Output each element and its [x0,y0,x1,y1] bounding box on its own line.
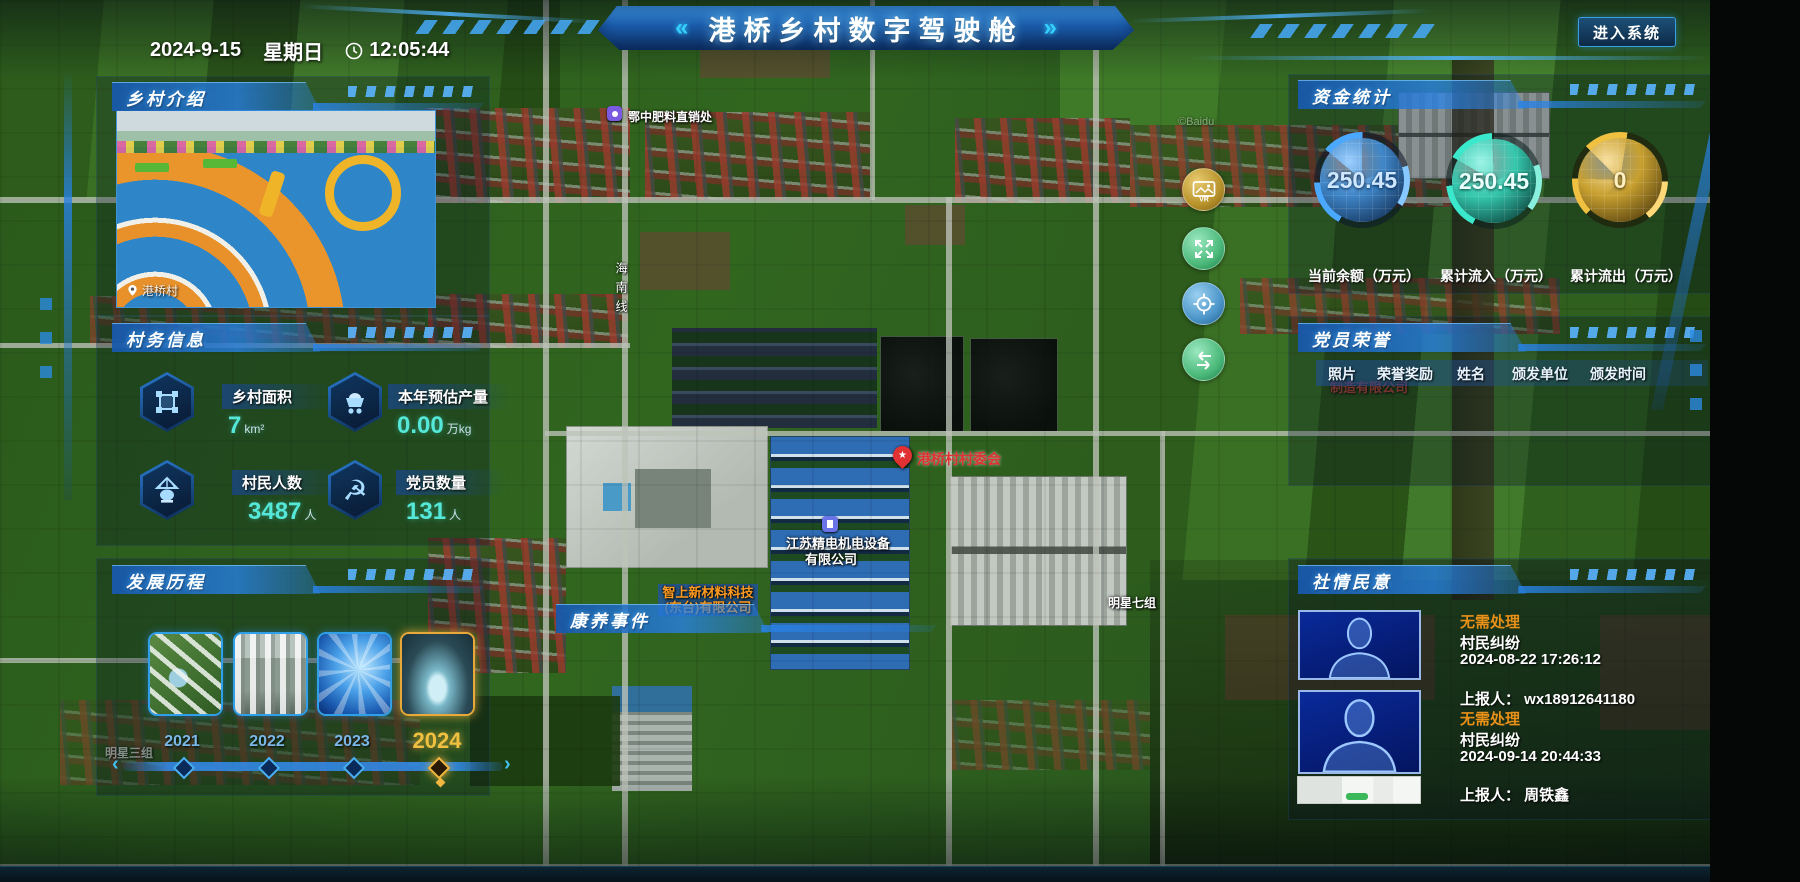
panel-header-funds: 资金统计 [1298,80,1706,108]
page-title: 港桥乡村数字驾驶舱 [709,9,1024,48]
locate-button[interactable] [1182,282,1225,325]
stat-value-area: 7km² [228,412,264,440]
location-pin-icon [127,284,138,297]
header-deco-dashes-left [415,20,600,34]
gauge-current-balance: 250.45 [1314,132,1410,228]
thumb-image [150,634,221,714]
right-deco-square [1690,364,1702,376]
map-pin-purple[interactable] [607,106,622,121]
bottom-edge-bar [0,866,1710,882]
thumb-image [402,634,473,714]
fullscreen-icon [1192,237,1216,261]
map-village [950,700,1150,770]
farmer-icon [140,460,194,520]
locate-icon [1192,292,1216,316]
svg-text:VR: VR [1199,196,1209,203]
datetime-bar: 2024-9-15 星期日 12:05:44 [150,36,449,65]
map-label-fertilizer-store: 鄂中肥料直销处 [628,108,712,125]
timeline-next-icon[interactable]: › [504,753,511,776]
honor-col-date: 颁发时间 [1590,364,1646,384]
party-emblem-icon: ☭ [328,460,382,520]
photo-caption: 港桥村 [127,282,178,299]
gauge-total-outflow: 0 [1572,132,1668,228]
photo-bench [135,163,169,172]
left-deco-square [40,366,52,378]
left-edge-deco [64,70,72,500]
sentiment-reporter-1: 上报人： wx18912641180 [1460,688,1635,709]
timeline-prev-icon[interactable]: ‹ [112,753,119,776]
stat-label-output: 本年预估产量 [388,384,512,409]
panel-header-dashes [348,569,476,580]
honor-col-award: 荣誉奖励 [1377,364,1433,384]
map-field-patch [640,232,730,290]
development-thumb-2023[interactable] [317,632,392,716]
stat-label-area: 乡村面积 [222,384,332,409]
stat-label-party-members: 党员数量 [396,470,506,495]
panel-title-sentiment: 社情民意 [1312,568,1392,593]
sentiment-avatar-1[interactable] [1298,610,1421,680]
panel-header-village-info: 村务信息 [112,323,484,351]
honor-col-issuer: 颁发单位 [1512,364,1568,384]
map-label-committee: 港桥村村委会 [917,449,1001,469]
map-road [946,197,952,867]
map-road [543,0,549,868]
person-hologram-icon [1300,692,1419,772]
sentiment-status-1: 无需处理 [1460,611,1520,632]
panel-title-health-events: 康养事件 [570,607,650,632]
back-arrows-icon [1192,348,1216,372]
sentiment-avatar-2[interactable] [1298,690,1421,774]
map-warehouse [950,476,1127,626]
chat-pill [1346,793,1368,800]
panel-header-line [313,586,484,593]
panel-header-village-intro: 乡村介绍 [112,82,484,110]
cart-icon [328,372,382,432]
village-photo[interactable]: 港桥村 [116,110,436,308]
map-housing-rows [672,328,877,428]
dashboard: 鄂中肥料直销处 海南线 ★ 港桥村村委会 江苏精电机电设备 有限公司 智上新材料… [0,0,1800,882]
sentiment-type-2: 村民纠纷 [1460,729,1520,750]
weekday-text: 星期日 [263,36,323,65]
panel-header-dashes [348,327,476,338]
thumb-image [235,634,306,714]
right-deco-square [1690,330,1702,342]
stat-value-population: 3487人 [248,498,316,526]
gauge-label-outflow: 累计流出（万元） [1570,266,1682,286]
right-panel-deco-line [1190,56,1710,60]
year-2022[interactable]: 2022 [232,733,302,751]
star-icon: ★ [898,450,907,461]
sentiment-time-1: 2024-08-22 17:26:12 [1460,651,1601,668]
main-title-bar: « 港桥乡村数字驾驶舱 » [598,6,1134,50]
photo-bench [203,159,237,168]
panel-title-development: 发展历程 [126,568,206,593]
panel-header-sentiment: 社情民意 [1298,565,1706,593]
map-building-complex [566,426,768,568]
panel-title-village-info: 村务信息 [126,326,206,351]
enter-system-button[interactable]: 进入系统 [1578,17,1676,47]
panel-header-line [1518,586,1706,593]
sentiment-screenshot-thumb[interactable] [1297,776,1421,804]
stat-label-population: 村民人数 [232,470,342,495]
panel-header-dashes [1570,569,1698,580]
sentiment-status-2: 无需处理 [1460,708,1520,729]
fullscreen-button[interactable] [1182,227,1225,270]
panel-header-line [1518,344,1706,351]
map-label-road: 海南线 [613,262,630,319]
map-village [955,118,1130,203]
sentiment-time-2: 2024-09-14 20:44:33 [1460,748,1601,765]
date-text: 2024-9-15 [150,39,241,62]
map-road [1093,0,1099,868]
title-arrow-left-icon: « [675,14,688,42]
map-road [622,0,628,868]
year-2023[interactable]: 2023 [317,733,387,751]
time-text: 12:05:44 [369,39,449,62]
panel-title-village-intro: 乡村介绍 [126,85,206,110]
development-thumb-2022[interactable] [233,632,308,716]
stat-value-output: 0.00万kg [397,412,471,440]
development-thumb-2024[interactable] [400,632,475,716]
gauge-label-inflow: 累计流入（万元） [1440,266,1552,286]
map-road [1160,431,1165,868]
panel-header-line [313,103,484,110]
map-label-group7: 明星七组 [1108,594,1156,611]
gauge-label-balance: 当前余额（万元） [1308,266,1420,286]
map-pond [970,338,1058,432]
panel-header-development: 发展历程 [112,565,484,593]
left-deco-square [40,298,52,310]
honor-col-photo: 照片 [1328,364,1356,384]
panel-header-dashes [348,86,476,97]
year-2024[interactable]: 2024 [402,728,472,754]
panel-header-dashes [1570,84,1698,95]
left-deco-square [40,332,52,344]
right-black-strip [1710,0,1800,882]
panel-header-honor: 党员荣誉 [1298,323,1706,351]
thumb-image [319,634,390,714]
header-deco-dashes-right [1250,24,1445,38]
panorama-vr-button[interactable]: VR [1182,168,1225,211]
panel-header-health-events: 康养事件 [556,604,936,632]
year-2021[interactable]: 2021 [147,733,217,751]
map-pin-company[interactable] [822,516,838,532]
panel-header-line [1518,101,1706,108]
map-village [645,112,870,200]
development-thumb-2021[interactable] [148,632,223,716]
panel-title-funds: 资金统计 [1312,83,1392,108]
map-courtyard [635,469,711,528]
map-field-patch [905,205,965,245]
sentiment-reporter-2: 上报人： 周铁鑫 [1460,784,1569,805]
back-button[interactable] [1182,338,1225,381]
map-label-company1: 江苏精电机电设备 有限公司 [786,536,876,568]
area-icon [140,372,194,432]
panorama-icon: VR [1191,177,1217,203]
photo-ring-sculpture [325,155,401,231]
sentiment-type-1: 村民纠纷 [1460,632,1520,653]
panel-header-line [313,344,484,351]
honor-col-name: 姓名 [1457,364,1485,384]
panel-header-line [761,625,936,632]
right-deco-square [1690,398,1702,410]
gauge-total-inflow: 250.45 [1446,133,1542,229]
honor-table-header: 照片 荣誉奖励 姓名 颁发单位 颁发时间 [1316,360,1708,386]
clock-icon [345,42,363,60]
map-watermark: ©Baidu [1178,116,1214,128]
person-hologram-icon [1300,612,1419,678]
stat-value-party-members: 131人 [406,498,461,526]
panel-title-honor: 党员荣誉 [1312,326,1392,351]
title-arrow-right-icon: » [1044,14,1057,42]
